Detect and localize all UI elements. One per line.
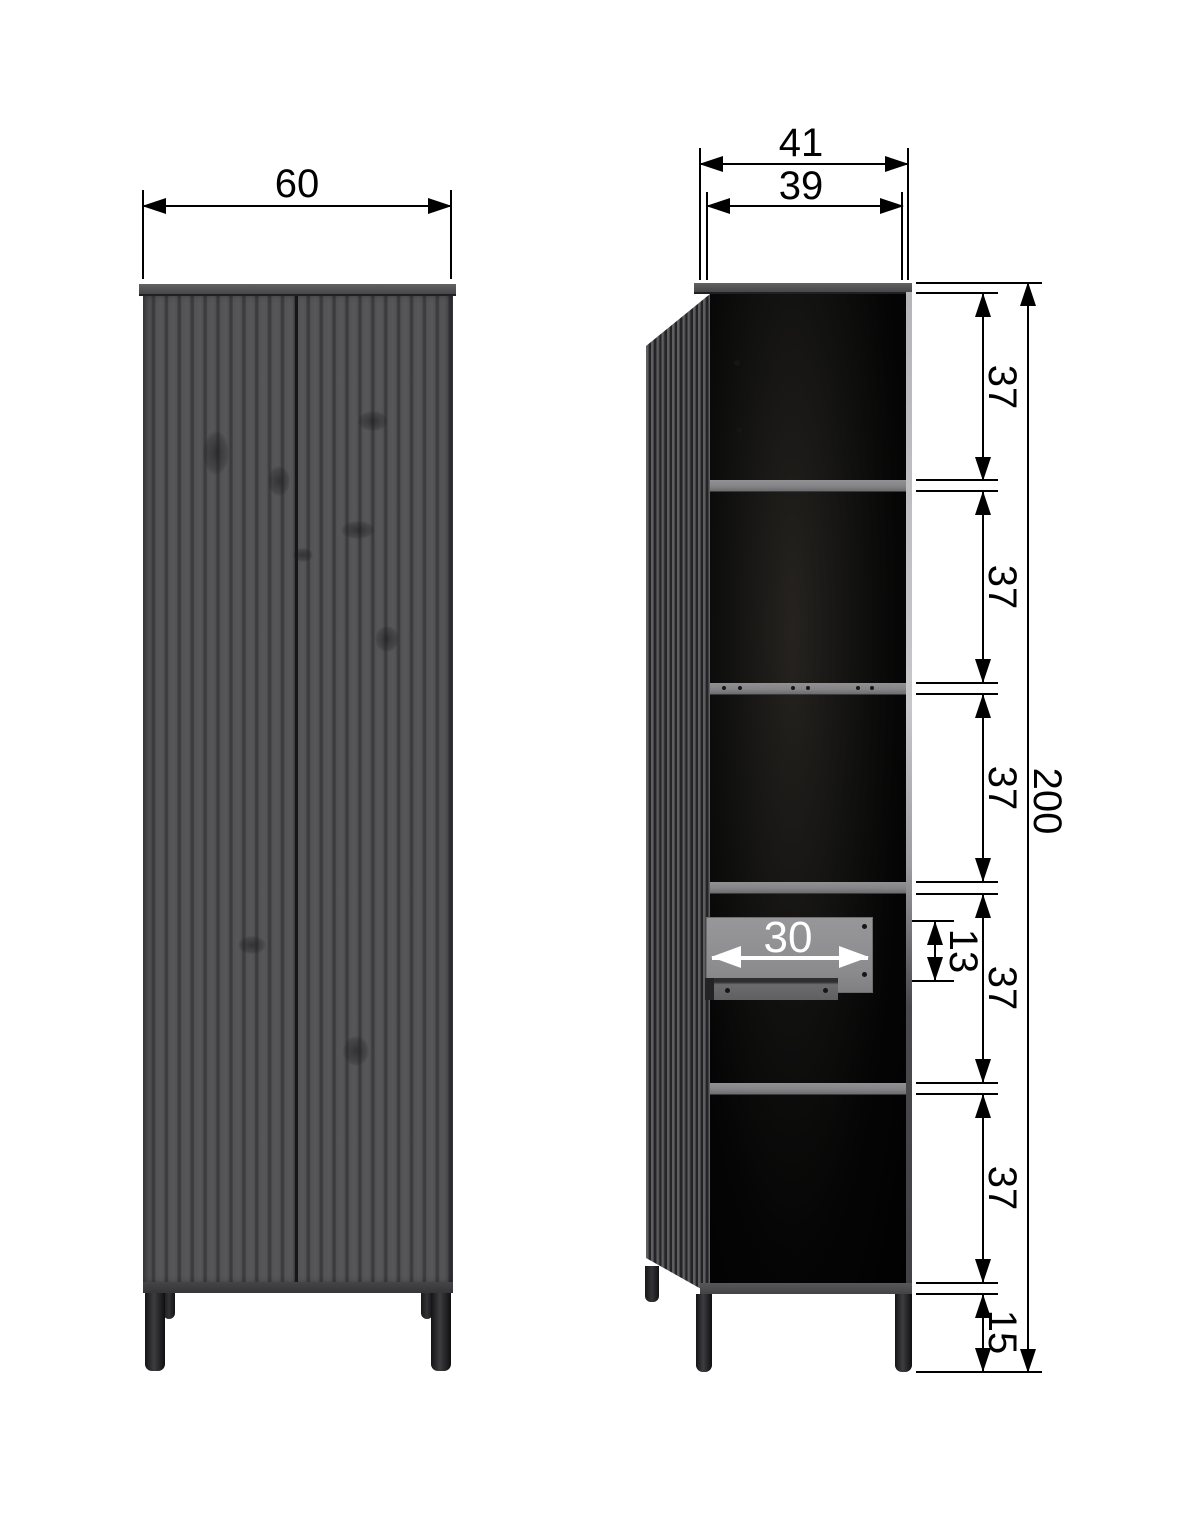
shelf-3 <box>710 882 906 894</box>
total-height-label: 200 <box>1027 768 1067 835</box>
drawer-height-dimension-line <box>934 922 936 980</box>
side-back-edge <box>906 292 912 1283</box>
section5-label: 37 <box>982 1166 1022 1211</box>
side-leg-left <box>696 1294 712 1372</box>
depth41-label: 41 <box>779 123 824 163</box>
shelf-2 <box>710 683 906 695</box>
drawer-depth-label: 30 <box>764 916 813 960</box>
section2-label: 37 <box>982 565 1022 610</box>
side-front-edge <box>646 294 710 1294</box>
section4-label: 37 <box>982 966 1022 1011</box>
leg-height-label: 15 <box>982 1310 1022 1355</box>
front-door-seam <box>295 296 298 1282</box>
shelf-4 <box>710 1083 906 1095</box>
furniture-dimension-diagram: 60 <box>0 0 1200 1536</box>
side-interior <box>710 294 906 1283</box>
drawer-height-label: 13 <box>943 929 983 974</box>
depth39-label: 39 <box>779 166 824 206</box>
front-leg-left <box>145 1293 165 1371</box>
front-width-label: 60 <box>275 164 320 204</box>
front-top-panel <box>139 284 456 296</box>
side-bottom-rail <box>700 1283 912 1294</box>
section3-label: 37 <box>982 766 1022 811</box>
section1-label: 37 <box>982 365 1022 410</box>
front-leg-right <box>431 1293 451 1371</box>
side-leg-right <box>895 1294 912 1372</box>
drawer-slide-rail <box>705 978 838 1000</box>
front-bottom-rail <box>143 1282 453 1293</box>
front-doors <box>143 296 453 1282</box>
drawer-depth-dimension-line <box>712 956 868 960</box>
side-front-leg-stub <box>645 1266 659 1302</box>
shelf-1 <box>710 480 906 492</box>
side-top-panel <box>694 283 912 294</box>
